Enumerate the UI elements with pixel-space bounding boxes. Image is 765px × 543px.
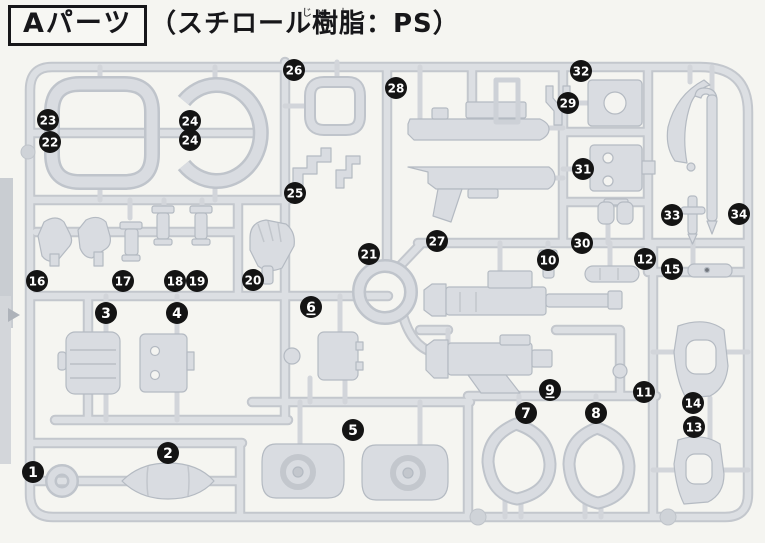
hand-part-right — [78, 217, 110, 266]
part-2-shape — [122, 463, 214, 499]
part-marker-17: 17 — [112, 270, 134, 292]
part-marker-2: 2 — [157, 442, 179, 464]
part-marker-19: 19 — [186, 270, 208, 292]
part-marker-33: 33 — [661, 204, 683, 226]
part-18-shape — [152, 206, 174, 245]
part-marker-1: 1 — [22, 461, 44, 483]
rifle-part-upper — [408, 102, 549, 140]
svg-text:10: 10 — [540, 254, 557, 268]
part-marker-5: 5 — [342, 419, 364, 441]
part-19-shape — [190, 206, 212, 245]
part-marker-30: 30 — [571, 232, 593, 254]
svg-text:16: 16 — [29, 275, 46, 289]
svg-text:7: 7 — [521, 406, 531, 422]
part-marker-11: 11 — [633, 381, 655, 403]
svg-text:33: 33 — [664, 209, 681, 223]
part-marker-31: 31 — [572, 158, 594, 180]
svg-text:24: 24 — [182, 134, 199, 148]
svg-text:27: 27 — [429, 235, 446, 249]
svg-text:23: 23 — [40, 114, 57, 128]
svg-text:5: 5 — [348, 423, 358, 439]
bazooka-part-lower — [426, 335, 552, 393]
part-3-shape — [58, 332, 120, 394]
part-marker-16: 16 — [26, 270, 48, 292]
part-marker-27: 27 — [426, 230, 448, 252]
part-marker-13: 13 — [683, 416, 705, 438]
part-6-shape — [284, 332, 363, 380]
part-marker-24: 24 — [179, 129, 201, 151]
svg-text:29: 29 — [560, 97, 577, 111]
part-marker-14: 14 — [682, 392, 704, 414]
part-marker-12: 12 — [634, 248, 656, 270]
part-marker-34: 34 — [728, 203, 750, 225]
svg-text:26: 26 — [286, 64, 303, 78]
manual-page: { "header": { "part_label": "Aパーツ", "mat… — [0, 0, 765, 543]
ball-joint-part — [613, 364, 627, 378]
part-marker-25: 25 — [284, 182, 306, 204]
part-13-shield-shape — [674, 437, 724, 504]
part-marker-24: 24 — [179, 110, 201, 132]
part-marker-4: 4 — [166, 302, 188, 324]
part-marker-9: 9 — [539, 379, 561, 401]
part-marker-21: 21 — [358, 243, 380, 265]
part-marker-18: 18 — [164, 270, 186, 292]
svg-text:34: 34 — [731, 208, 748, 222]
part-marker-22: 22 — [39, 131, 61, 153]
part-marker-32: 32 — [570, 60, 592, 82]
svg-text:31: 31 — [575, 163, 592, 177]
svg-text:20: 20 — [245, 274, 262, 288]
svg-text:28: 28 — [388, 82, 405, 96]
svg-text:1: 1 — [28, 465, 38, 481]
svg-text:18: 18 — [167, 275, 184, 289]
part-marker-28: 28 — [385, 77, 407, 99]
svg-text:25: 25 — [287, 187, 304, 201]
svg-text:8: 8 — [591, 406, 601, 422]
svg-text:11: 11 — [636, 386, 653, 400]
part-marker-7: 7 — [515, 402, 537, 424]
svg-text:14: 14 — [685, 397, 702, 411]
part-4-shape — [140, 334, 194, 392]
part-marker-3: 3 — [95, 302, 117, 324]
svg-text:13: 13 — [686, 421, 703, 435]
svg-text:17: 17 — [115, 275, 132, 289]
svg-text:12: 12 — [637, 253, 654, 267]
svg-text:32: 32 — [573, 65, 590, 79]
rifle-part-lower — [408, 167, 555, 222]
svg-text:2: 2 — [163, 446, 173, 462]
part-marker-15: 15 — [661, 258, 683, 280]
page-edge-artifact — [0, 178, 20, 464]
part-12-shape — [585, 266, 639, 282]
svg-text:21: 21 — [361, 248, 378, 262]
part-14-shield-shape — [674, 322, 728, 398]
part-marker-8: 8 — [585, 402, 607, 424]
part-32-shape — [588, 80, 642, 126]
part-17-shape — [120, 222, 142, 261]
part-marker-6: 6 — [300, 296, 322, 318]
svg-text:19: 19 — [189, 275, 206, 289]
sprue-diagram: 1234567891011121314151617181920212223242… — [0, 0, 765, 543]
part-25-shapes — [293, 148, 360, 190]
part-33-shape — [681, 196, 705, 244]
part-marker-10: 10 — [537, 249, 559, 271]
svg-text:3: 3 — [101, 306, 111, 322]
svg-text:4: 4 — [172, 306, 182, 322]
part-marker-23: 23 — [37, 109, 59, 131]
hand-part-left — [38, 218, 72, 266]
svg-text:24: 24 — [182, 115, 199, 129]
part-marker-20: 20 — [242, 269, 264, 291]
part-marker-26: 26 — [283, 59, 305, 81]
part-marker-29: 29 — [557, 92, 579, 114]
svg-text:15: 15 — [664, 263, 681, 277]
svg-text:30: 30 — [574, 237, 591, 251]
foot-part-left — [262, 444, 344, 498]
svg-text:22: 22 — [42, 136, 59, 150]
part-30-shape — [598, 199, 633, 224]
foot-part-right — [362, 445, 448, 500]
part-15-shape — [688, 264, 732, 277]
